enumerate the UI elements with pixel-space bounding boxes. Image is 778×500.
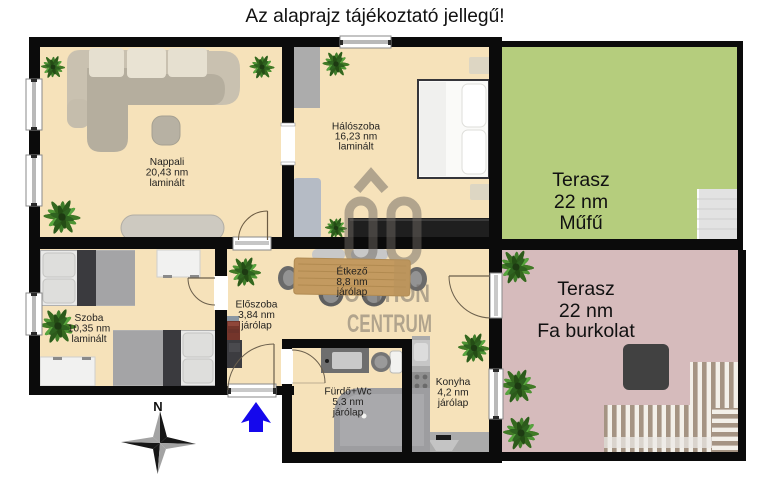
svg-text:Nappali: Nappali <box>150 157 185 168</box>
svg-text:5.3 nm: 5.3 nm <box>332 397 363 408</box>
svg-text:4,2 nm: 4,2 nm <box>437 388 468 399</box>
svg-text:3,84 nm: 3,84 nm <box>238 310 275 321</box>
svg-text:Az alaprajz tájékoztató jelleg: Az alaprajz tájékoztató jellegű! <box>245 6 504 27</box>
svg-text:járólap: járólap <box>240 321 272 332</box>
svg-text:Terasz: Terasz <box>557 278 614 300</box>
svg-text:22 nm: 22 nm <box>559 300 613 322</box>
svg-text:Előszoba: Előszoba <box>236 300 278 311</box>
svg-text:laminált: laminált <box>149 178 184 189</box>
svg-text:járólap: járólap <box>437 398 469 409</box>
svg-text:járólap: járólap <box>336 287 368 298</box>
svg-text:laminált: laminált <box>338 142 373 153</box>
svg-text:20,43 nm: 20,43 nm <box>146 168 188 179</box>
svg-text:Fa burkolat: Fa burkolat <box>537 320 635 342</box>
svg-text:22 nm: 22 nm <box>554 191 608 213</box>
svg-text:Étkező: Étkező <box>336 265 367 278</box>
svg-text:N: N <box>153 399 162 414</box>
svg-text:Műfű: Műfű <box>559 212 603 234</box>
svg-text:Szoba: Szoba <box>75 313 104 324</box>
svg-text:10,35 nm: 10,35 nm <box>68 324 110 335</box>
svg-text:Konyha: Konyha <box>436 377 471 388</box>
svg-text:CENTRUM: CENTRUM <box>347 310 432 338</box>
svg-text:Fürdő+Wc: Fürdő+Wc <box>324 387 371 398</box>
svg-text:laminált: laminált <box>71 334 106 345</box>
svg-text:járólap: járólap <box>332 408 364 419</box>
svg-text:Terasz: Terasz <box>552 169 609 191</box>
